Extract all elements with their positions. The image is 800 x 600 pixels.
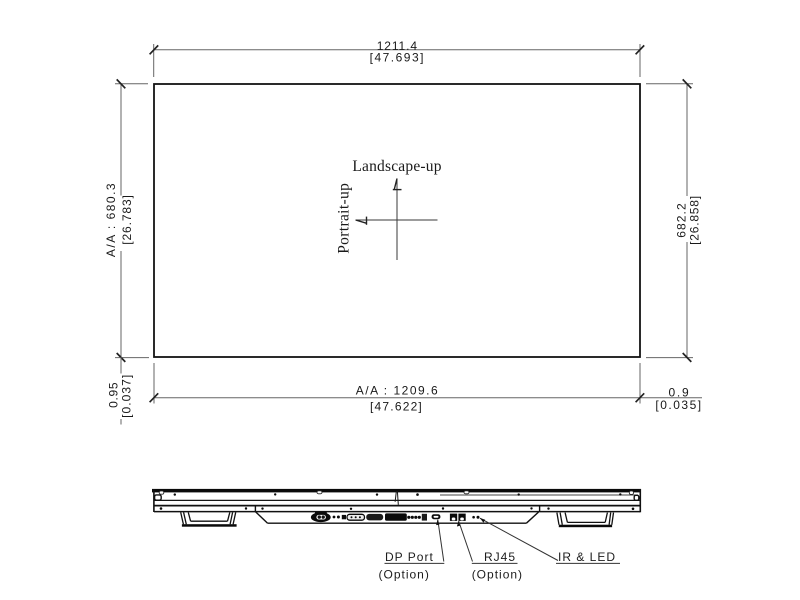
svg-text:(Option): (Option) bbox=[379, 568, 430, 582]
svg-text:DP Port: DP Port bbox=[385, 550, 434, 564]
svg-text:(Option): (Option) bbox=[472, 568, 523, 582]
svg-text:[0.035]: [0.035] bbox=[655, 398, 702, 412]
svg-text:[26.783]: [26.783] bbox=[120, 194, 134, 245]
svg-text:[0.037]: [0.037] bbox=[119, 374, 133, 418]
svg-text:Landscape-up: Landscape-up bbox=[352, 158, 441, 175]
svg-text:Portrait-up: Portrait-up bbox=[336, 183, 353, 254]
svg-text:[26.858]: [26.858] bbox=[687, 195, 701, 245]
svg-text:RJ45: RJ45 bbox=[484, 550, 516, 564]
svg-text:A/A : 680.3: A/A : 680.3 bbox=[104, 182, 118, 257]
svg-text:0.95: 0.95 bbox=[106, 382, 120, 408]
svg-text:[47.622]: [47.622] bbox=[370, 399, 423, 413]
svg-text:A/A : 1209.6: A/A : 1209.6 bbox=[356, 384, 439, 398]
svg-text:[47.693]: [47.693] bbox=[370, 50, 425, 64]
svg-text:IR & LED: IR & LED bbox=[558, 550, 616, 564]
